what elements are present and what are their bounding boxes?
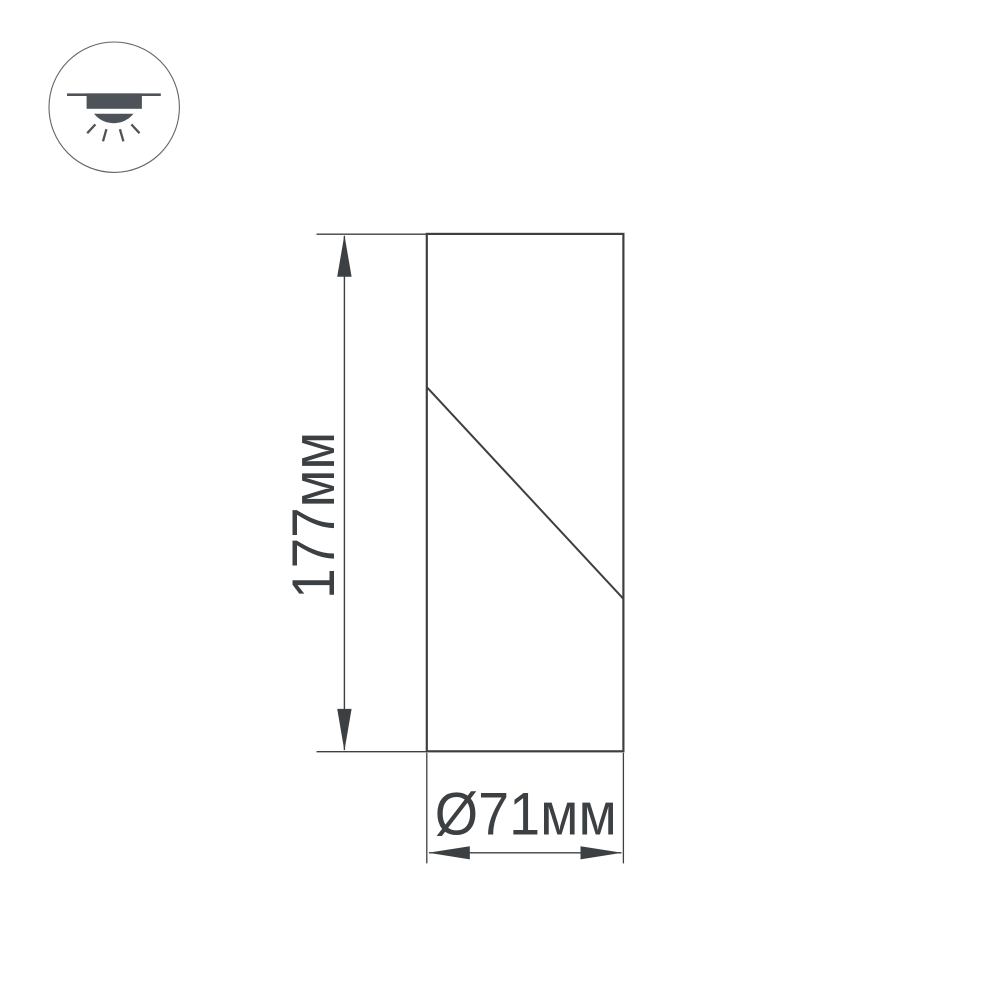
svg-text:Ø71мм: Ø71мм (435, 781, 617, 848)
svg-text:177мм: 177мм (280, 432, 347, 599)
